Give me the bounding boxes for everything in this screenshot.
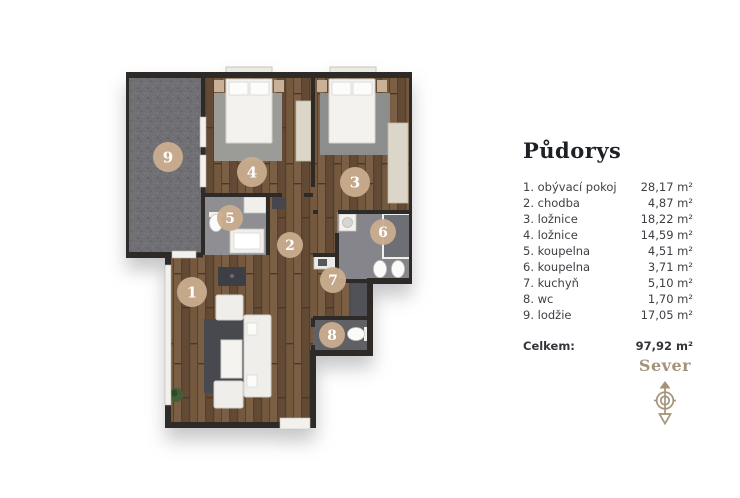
room-label: 6. koupelna xyxy=(523,259,590,275)
room-label: 9. lodžie xyxy=(523,307,571,323)
armchair xyxy=(214,381,243,408)
room-area: 1,70 m² xyxy=(648,291,693,307)
badge-number-5: 5 xyxy=(225,211,235,227)
room-label: 2. chodba xyxy=(523,195,580,211)
room-badge-6: 6 xyxy=(370,219,396,245)
kitchen-island xyxy=(350,283,369,318)
room-label: 3. ložnice xyxy=(523,211,578,227)
legend-row-8: 8. wc 1,70 m² xyxy=(523,291,693,307)
room-badge-5: 5 xyxy=(217,205,243,231)
page-title: Půdorys xyxy=(523,138,693,163)
badge-number-7: 7 xyxy=(328,273,338,289)
total-label: Celkem: xyxy=(523,338,575,354)
kitchen-sink xyxy=(318,259,327,266)
window xyxy=(165,265,171,405)
compass-label: Sever xyxy=(615,356,715,375)
room-label: 8. wc xyxy=(523,291,553,307)
room-area: 4,87 m² xyxy=(648,195,693,211)
hallway-vestibule-floor xyxy=(313,212,337,255)
total-area: 97,92 m² xyxy=(636,338,693,354)
legend-row-9: 9. lodžie 17,05 m² xyxy=(523,307,693,323)
compass-block: Sever xyxy=(615,356,715,426)
plant-detail xyxy=(171,390,178,397)
pillow xyxy=(229,82,248,95)
legend-row-2: 2. chodba 4,87 m² xyxy=(523,195,693,211)
room-label: 7. kuchyň xyxy=(523,275,579,291)
hallway-console xyxy=(272,197,286,209)
north-compass-arrow-icon xyxy=(647,380,683,426)
washing-machine-door xyxy=(343,218,353,228)
armchair xyxy=(216,295,243,320)
legend-row-1: 1. obývací pokoj 28,17 m² xyxy=(523,179,693,195)
room-area: 17,05 m² xyxy=(641,307,693,323)
room-label: 1. obývací pokoj xyxy=(523,179,617,195)
badge-number-2: 2 xyxy=(285,238,295,254)
badge-number-9: 9 xyxy=(163,149,173,167)
badge-number-3: 3 xyxy=(350,174,360,192)
badge-number-1: 1 xyxy=(187,284,197,302)
room-badge-9: 9 xyxy=(153,142,183,172)
badge-number-8: 8 xyxy=(327,328,337,344)
toilet xyxy=(374,261,387,278)
legend-row-4: 4. ložnice 14,59 m² xyxy=(523,227,693,243)
legend-row-3: 3. ložnice 18,22 m² xyxy=(523,211,693,227)
room-area: 28,17 m² xyxy=(641,179,693,195)
room-area: 14,59 m² xyxy=(641,227,693,243)
legend-total-row: Celkem: 97,92 m² xyxy=(523,338,693,354)
loggia-door xyxy=(172,251,196,258)
room-badge-3: 3 xyxy=(340,167,370,197)
nightstand xyxy=(317,80,327,92)
sofa-cushion xyxy=(247,375,257,387)
window xyxy=(200,117,206,147)
coffee-table xyxy=(221,340,242,378)
room-area: 18,22 m² xyxy=(641,211,693,227)
legend: Půdorys 1. obývací pokoj 28,17 m² 2. cho… xyxy=(523,138,693,354)
room-badge-1: 1 xyxy=(177,277,207,307)
room-area: 5,10 m² xyxy=(648,275,693,291)
bathtub-basin xyxy=(234,233,260,249)
entrance-door xyxy=(280,418,310,429)
badge-number-6: 6 xyxy=(378,225,388,241)
room-area: 3,71 m² xyxy=(648,259,693,275)
room-badge-2: 2 xyxy=(277,232,303,258)
room-badge-4: 4 xyxy=(237,157,267,187)
legend-row-7: 7. kuchyň 5,10 m² xyxy=(523,275,693,291)
nightstand xyxy=(214,80,224,92)
badge-number-4: 4 xyxy=(247,164,257,182)
room-badge-7: 7 xyxy=(320,267,346,293)
nightstand xyxy=(274,80,284,92)
legend-row-5: 5. koupelna 4,51 m² xyxy=(523,243,693,259)
bidet xyxy=(392,261,405,278)
wardrobe xyxy=(296,101,311,161)
toilet xyxy=(348,328,365,341)
legend-row-6: 6. koupelna 3,71 m² xyxy=(523,259,693,275)
floor-plan: 1 2 3 4 5 6 7 xyxy=(126,65,412,430)
floor-plan-svg: 1 2 3 4 5 6 7 xyxy=(126,65,412,430)
room-8-fixtures xyxy=(348,327,370,341)
room-label: 5. koupelna xyxy=(523,243,590,259)
window xyxy=(200,155,206,187)
vanity-sink xyxy=(244,197,266,213)
wardrobe xyxy=(388,123,408,203)
pillow xyxy=(250,82,269,95)
pillow xyxy=(332,82,351,95)
room-label: 4. ložnice xyxy=(523,227,578,243)
room-badge-8: 8 xyxy=(319,322,345,348)
room-area: 4,51 m² xyxy=(648,243,693,259)
pillow xyxy=(353,82,372,95)
nightstand xyxy=(377,80,387,92)
sofa-cushion xyxy=(247,323,257,335)
tv-detail xyxy=(230,274,234,278)
